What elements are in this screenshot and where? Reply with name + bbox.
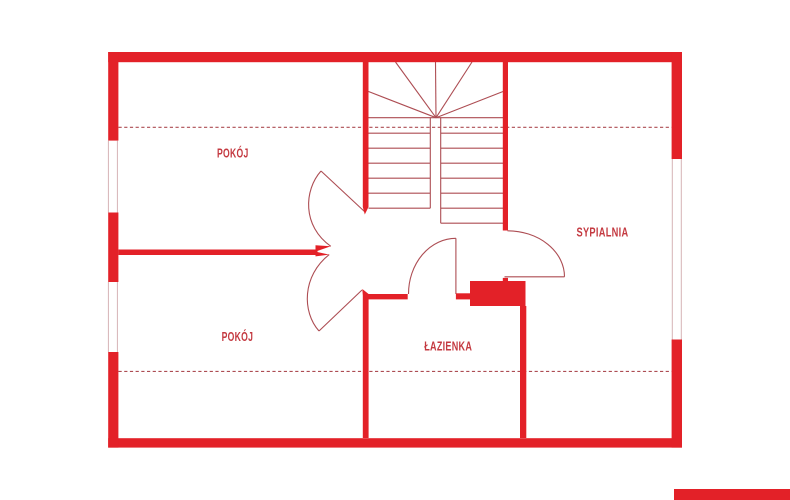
svg-text:POKÓJ: POKÓJ	[217, 146, 249, 161]
svg-text:POKÓJ: POKÓJ	[222, 329, 254, 344]
svg-text:SYPIALNIA: SYPIALNIA	[577, 225, 629, 239]
svg-text:ŁAZIENKA: ŁAZIENKA	[424, 340, 472, 354]
